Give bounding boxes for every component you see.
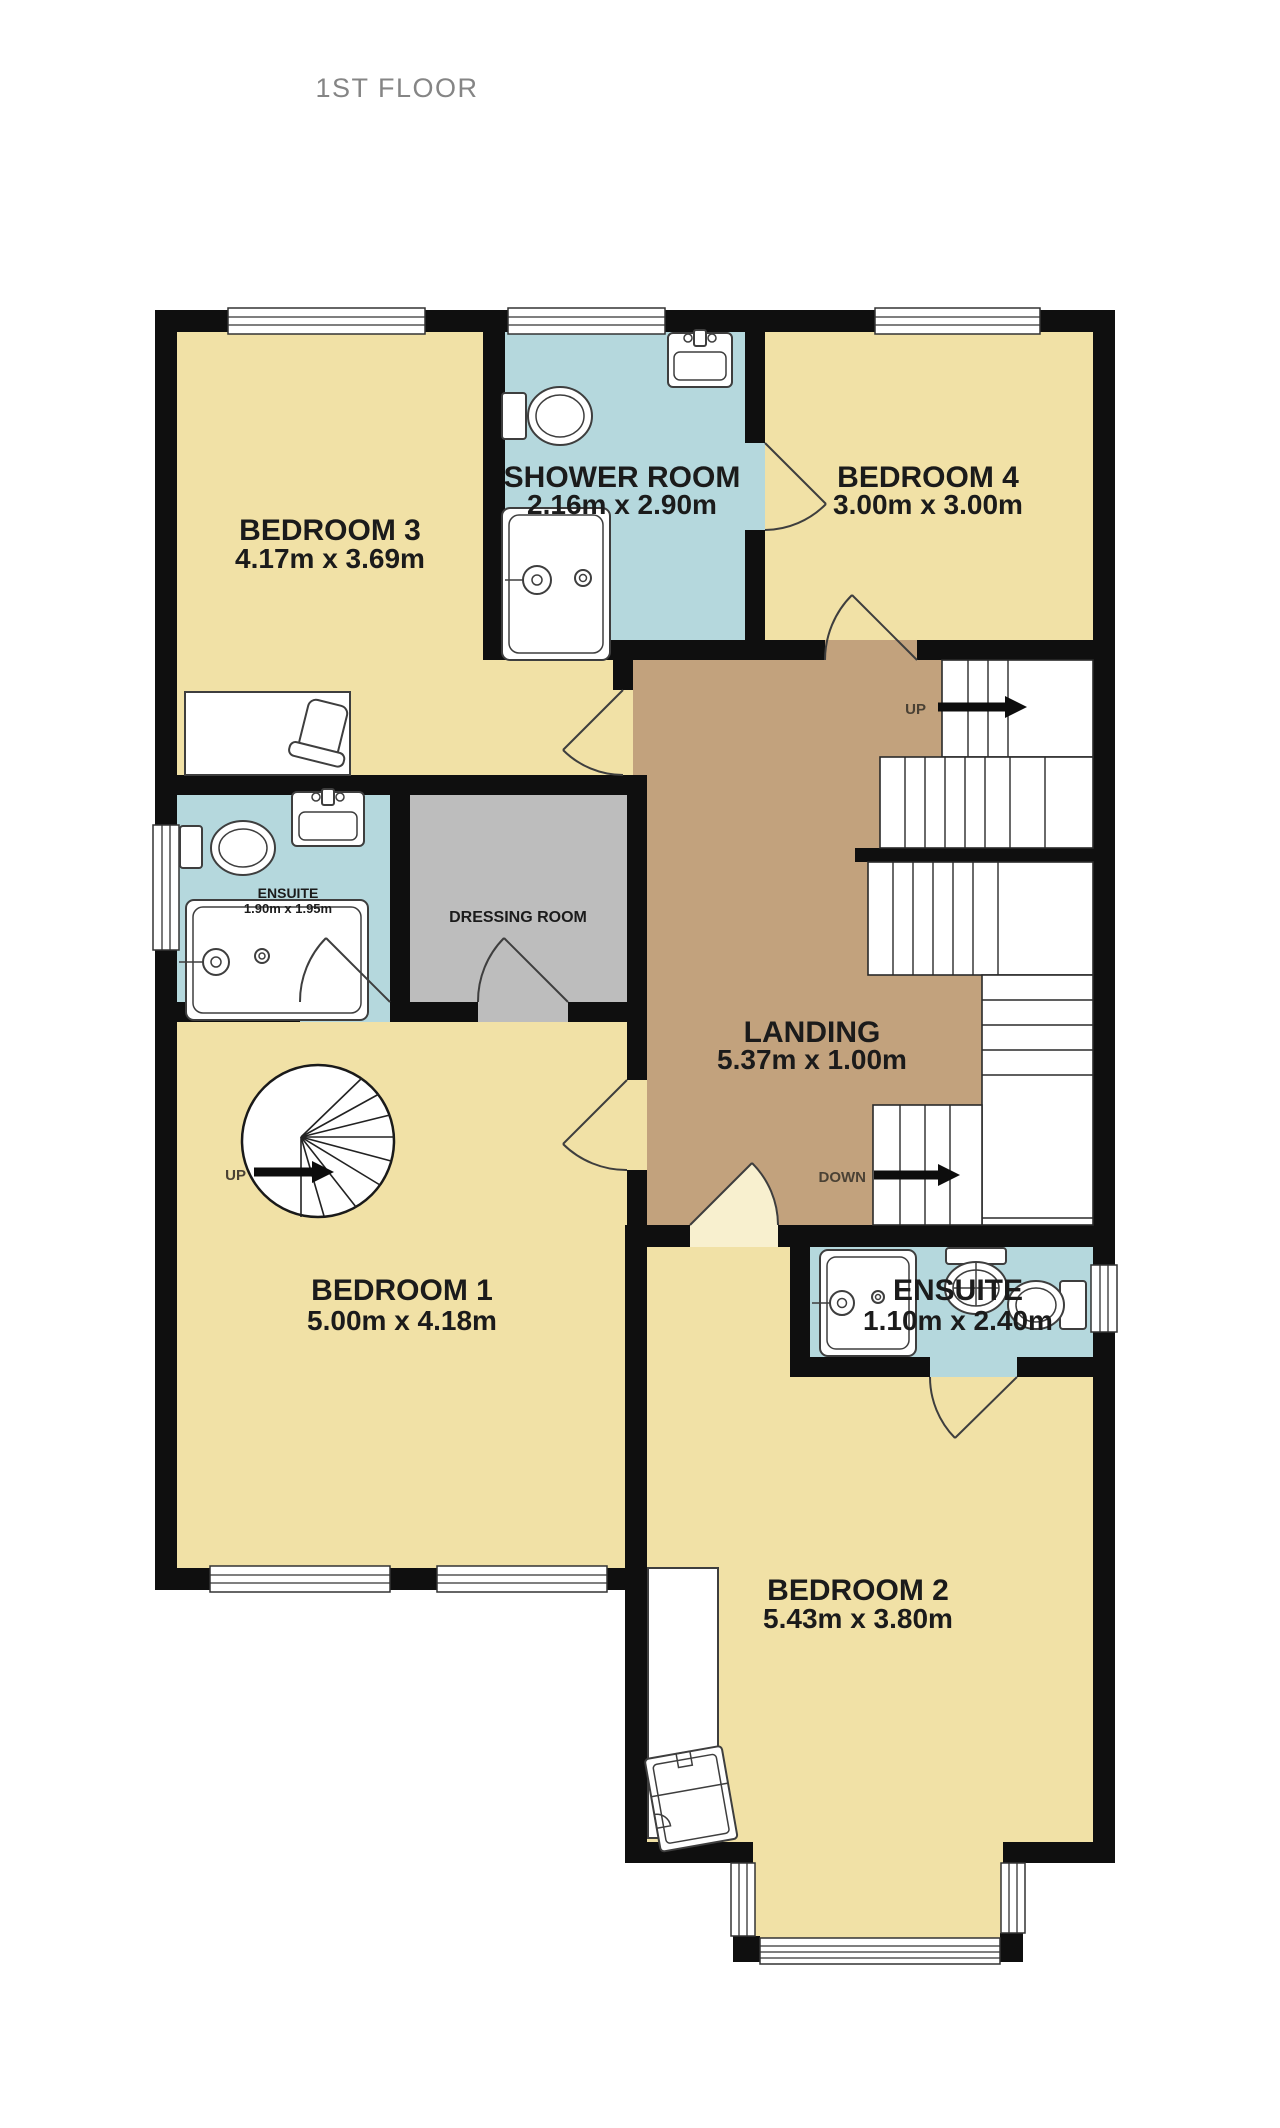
bay-window-floor	[753, 1842, 1003, 1940]
window-bay-bottom	[760, 1938, 1000, 1964]
window-ensuite-right	[1091, 1265, 1117, 1332]
toilet-icon	[502, 387, 592, 445]
bedroom2-dims: 5.43m x 3.80m	[763, 1603, 953, 1634]
stairs-up-label: UP	[905, 701, 926, 718]
window-bedroom1-bottom-right	[437, 1566, 607, 1592]
bedroom4-dims: 3.00m x 3.00m	[833, 489, 1023, 520]
sink-icon	[292, 789, 364, 846]
page-title: 1ST FLOOR	[315, 73, 478, 103]
toilet-icon	[180, 821, 275, 875]
ensuite-left-label: ENSUITE	[258, 885, 319, 901]
bedroom1-dims: 5.00m x 4.18m	[307, 1305, 497, 1336]
window-shower-top	[508, 308, 665, 334]
wardrobe-icon	[645, 1746, 738, 1852]
sink-icon	[668, 330, 732, 387]
shower-icon	[179, 900, 368, 1020]
dressing-room-label: DRESSING ROOM	[449, 909, 587, 926]
bedroom3-dims: 4.17m x 3.69m	[235, 543, 425, 574]
stairs-down-label: DOWN	[819, 1169, 867, 1186]
ensuite-left-dims: 1.90m x 1.95m	[244, 901, 332, 916]
bedroom3-annex-floor	[483, 660, 633, 775]
landing-dims: 5.37m x 1.00m	[717, 1044, 907, 1075]
ensuite-right-label: ENSUITE	[893, 1274, 1023, 1307]
staircase-spiral	[242, 1065, 394, 1217]
window-bay-right	[1001, 1863, 1025, 1933]
window-bay-left	[731, 1863, 755, 1936]
window-bedroom3-top	[228, 308, 425, 334]
shower-icon	[502, 508, 610, 660]
spiral-up-label: UP	[225, 1167, 246, 1184]
window-bedroom1-bottom-left	[210, 1566, 390, 1592]
shower-room-dims: 2.16m x 2.90m	[527, 489, 717, 520]
dressing-room-floor	[410, 795, 627, 1002]
floor-plan-page: 1ST FLOOR BEDROOM 3 4.17m x 3.69m SHOWER…	[0, 0, 1280, 2128]
ensuite-right-dims: 1.10m x 2.40m	[863, 1305, 1053, 1336]
bedroom1-label: BEDROOM 1	[311, 1274, 493, 1307]
floor-plan-canvas: 1ST FLOOR BEDROOM 3 4.17m x 3.69m SHOWER…	[0, 0, 1280, 2128]
window-bedroom4-top	[875, 308, 1040, 334]
window-ensuite-left	[153, 825, 179, 950]
